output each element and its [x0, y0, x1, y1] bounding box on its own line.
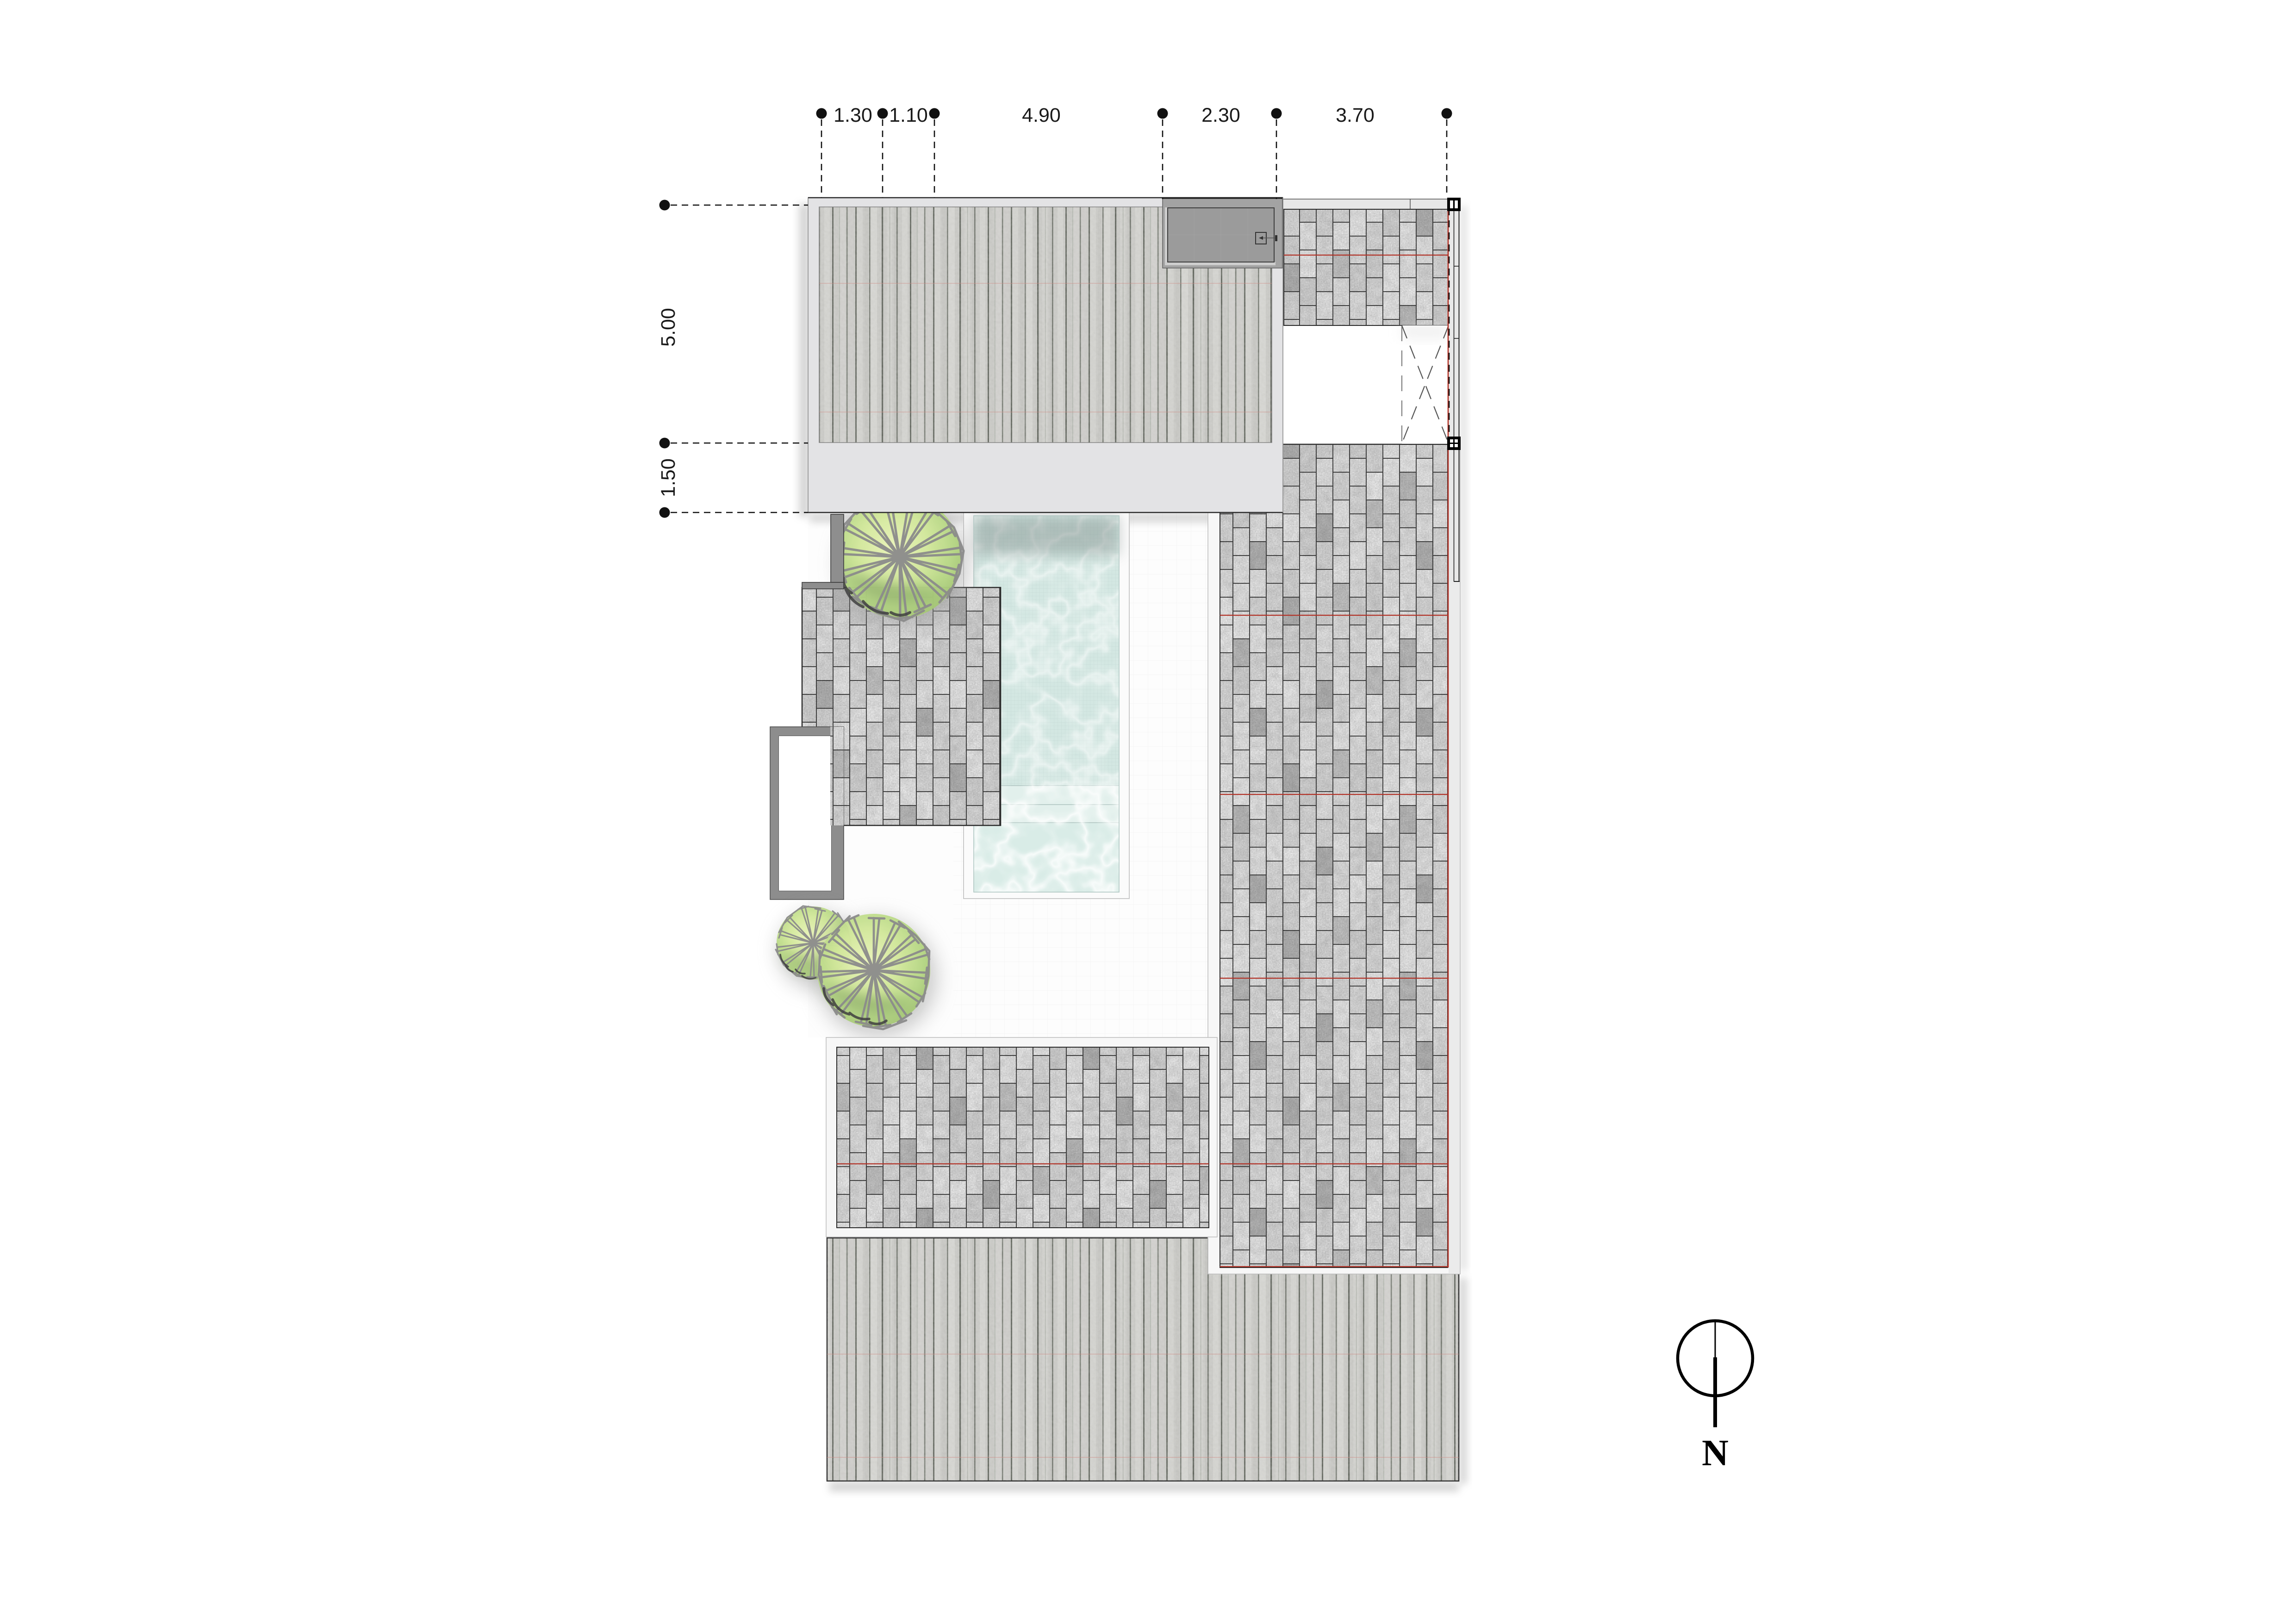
svg-text:1.50: 1.50	[657, 458, 679, 497]
svg-text:1.30: 1.30	[834, 104, 872, 126]
svg-text:1.10: 1.10	[889, 104, 928, 126]
svg-text:N: N	[1702, 1433, 1729, 1474]
svg-text:4.90: 4.90	[1022, 104, 1061, 126]
svg-text:2.30: 2.30	[1201, 104, 1240, 126]
svg-text:5.00: 5.00	[657, 308, 679, 347]
svg-text:3.70: 3.70	[1336, 104, 1375, 126]
